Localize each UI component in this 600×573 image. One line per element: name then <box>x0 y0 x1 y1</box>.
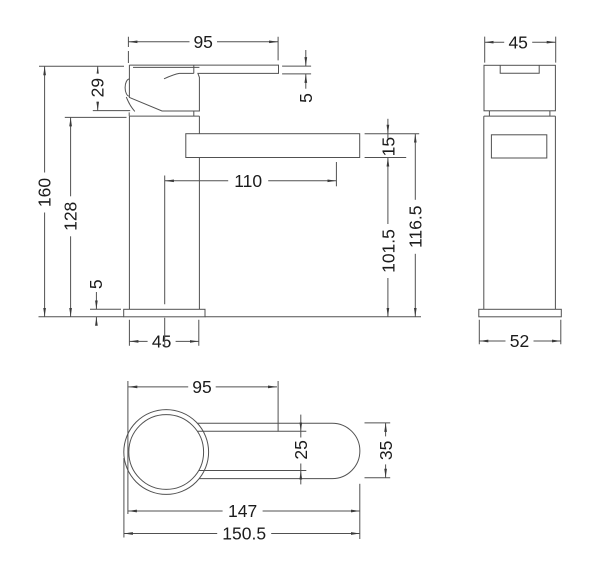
svg-text:35: 35 <box>376 441 396 460</box>
svg-text:45: 45 <box>152 332 171 352</box>
svg-text:5: 5 <box>296 93 316 103</box>
svg-text:45: 45 <box>508 32 527 52</box>
svg-text:95: 95 <box>193 32 212 52</box>
svg-text:52: 52 <box>510 331 529 351</box>
svg-text:150.5: 150.5 <box>222 524 266 544</box>
svg-text:147: 147 <box>228 501 257 521</box>
svg-text:101.5: 101.5 <box>378 229 398 273</box>
svg-text:25: 25 <box>291 440 311 459</box>
svg-text:29: 29 <box>88 78 108 97</box>
svg-text:110: 110 <box>234 171 262 191</box>
svg-text:116.5: 116.5 <box>406 206 426 249</box>
svg-text:5: 5 <box>86 279 106 289</box>
svg-text:160: 160 <box>34 178 54 207</box>
svg-text:128: 128 <box>60 202 80 231</box>
svg-text:95: 95 <box>192 377 211 397</box>
svg-text:15: 15 <box>379 137 399 156</box>
